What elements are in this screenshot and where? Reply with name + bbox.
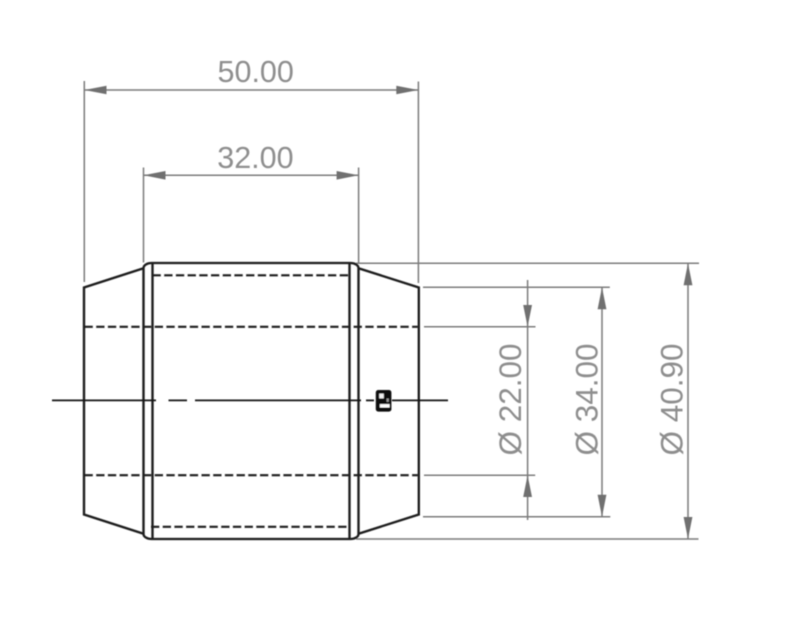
svg-text:32.00: 32.00 (217, 141, 293, 175)
svg-text:Ø 22.00: Ø 22.00 (492, 343, 528, 455)
svg-text:Ø 34.00: Ø 34.00 (569, 343, 605, 455)
svg-text:50.00: 50.00 (218, 55, 294, 89)
svg-text:Ø 40.90: Ø 40.90 (654, 343, 690, 455)
